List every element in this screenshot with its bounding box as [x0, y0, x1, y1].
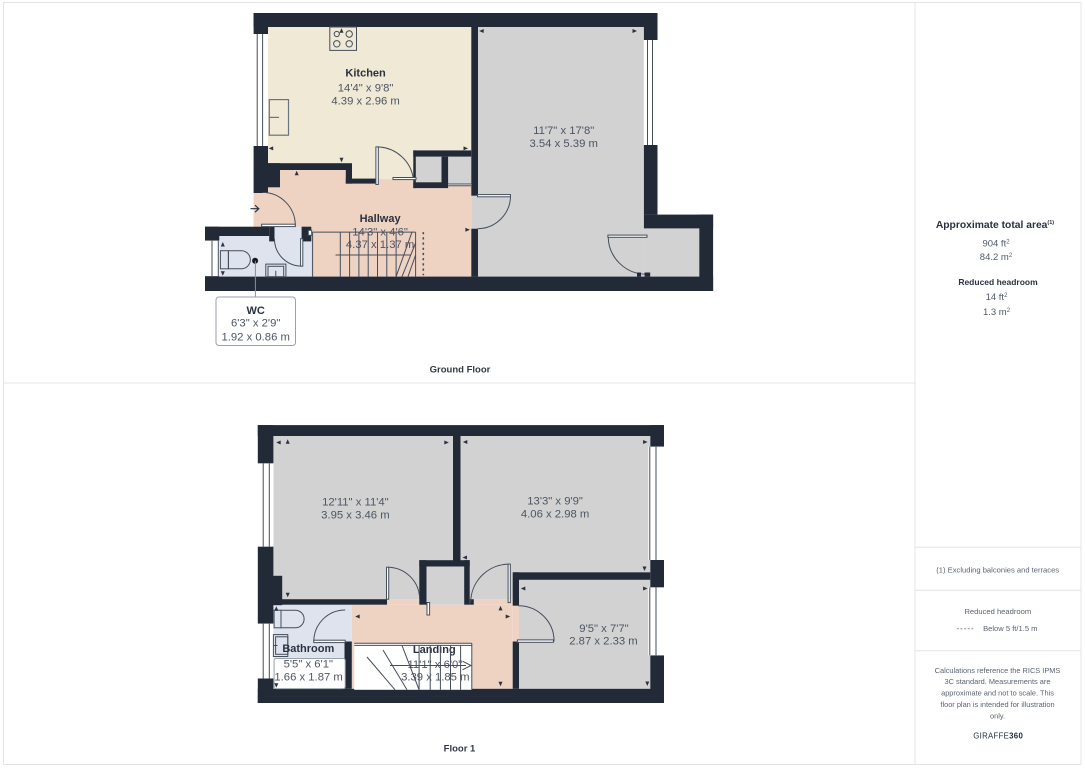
svg-text:14 ft2: 14 ft2	[986, 292, 1009, 303]
svg-text:Below 5 ft/1.5 m: Below 5 ft/1.5 m	[983, 624, 1037, 633]
svg-text:12'11" x 11'4": 12'11" x 11'4"	[322, 496, 389, 508]
svg-text:Reduced headroom: Reduced headroom	[958, 277, 1038, 287]
svg-text:3C standard. Measurements are: 3C standard. Measurements are	[945, 677, 1051, 686]
svg-text:1.3 m2: 1.3 m2	[983, 307, 1011, 318]
svg-text:5'5" x 6'1": 5'5" x 6'1"	[284, 658, 333, 670]
svg-text:Bathroom: Bathroom	[282, 643, 334, 655]
svg-text:floor plan is intended for ill: floor plan is intended for illustration	[940, 700, 1054, 709]
svg-text:1.66 x 1.87 m: 1.66 x 1.87 m	[274, 672, 342, 684]
svg-text:6'3" x 2'9": 6'3" x 2'9"	[231, 318, 280, 330]
svg-text:Reduced headroom: Reduced headroom	[964, 607, 1031, 616]
svg-text:4.06 x 2.98 m: 4.06 x 2.98 m	[521, 509, 589, 521]
svg-text:Approximate total area(1): Approximate total area(1)	[936, 220, 1054, 231]
svg-text:84.2 m2: 84.2 m2	[980, 252, 1013, 263]
svg-text:Ground Floor: Ground Floor	[430, 364, 491, 375]
svg-text:Kitchen: Kitchen	[345, 68, 386, 80]
svg-text:approximate and not to scale.: approximate and not to scale. This	[941, 689, 1054, 698]
svg-text:14'4" x 9'8": 14'4" x 9'8"	[338, 83, 394, 95]
svg-text:4.37 x 1.37 m: 4.37 x 1.37 m	[346, 239, 414, 251]
svg-text:904 ft2: 904 ft2	[982, 239, 1010, 250]
svg-text:4.39 x 2.96 m: 4.39 x 2.96 m	[331, 96, 399, 108]
svg-text:3.54 x 5.39 m: 3.54 x 5.39 m	[529, 138, 597, 150]
svg-text:11'7" x 17'8": 11'7" x 17'8"	[533, 125, 594, 137]
svg-text:3.39 x 1.85 m: 3.39 x 1.85 m	[401, 671, 469, 683]
svg-text:WC: WC	[247, 305, 265, 317]
svg-text:(1) Excluding balconies and te: (1) Excluding balconies and terraces	[936, 566, 1059, 575]
svg-text:3.95 x 3.46 m: 3.95 x 3.46 m	[321, 509, 389, 521]
svg-text:Calculations reference the RIC: Calculations reference the RICS IPMS	[935, 666, 1061, 675]
svg-text:Floor 1: Floor 1	[444, 744, 476, 755]
svg-text:only.: only.	[990, 711, 1005, 720]
svg-text:GIRAFFE360: GIRAFFE360	[973, 732, 1023, 741]
svg-text:Hallway: Hallway	[360, 213, 402, 225]
svg-text:1.92 x 0.86 m: 1.92 x 0.86 m	[221, 332, 289, 344]
svg-text:9'5" x 7'7": 9'5" x 7'7"	[579, 623, 628, 635]
svg-text:13'3" x 9'9": 13'3" x 9'9"	[527, 495, 583, 507]
svg-text:2.87 x 2.33 m: 2.87 x 2.33 m	[569, 636, 637, 648]
